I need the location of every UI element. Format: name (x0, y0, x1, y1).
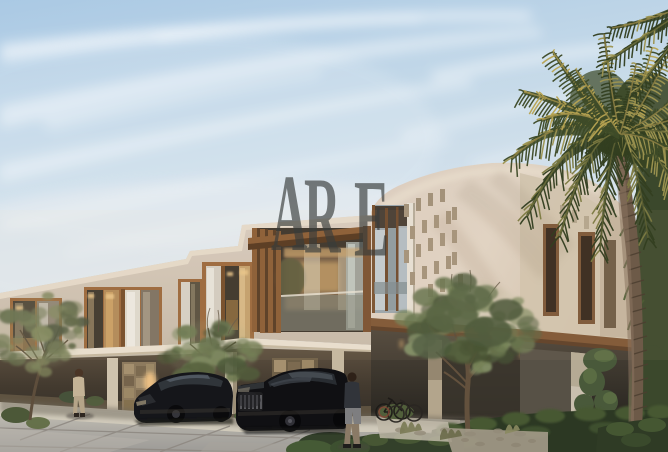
svg-text:A: A (271, 152, 308, 274)
svg-text:R: R (304, 155, 341, 277)
svg-text:E: E (354, 157, 389, 279)
